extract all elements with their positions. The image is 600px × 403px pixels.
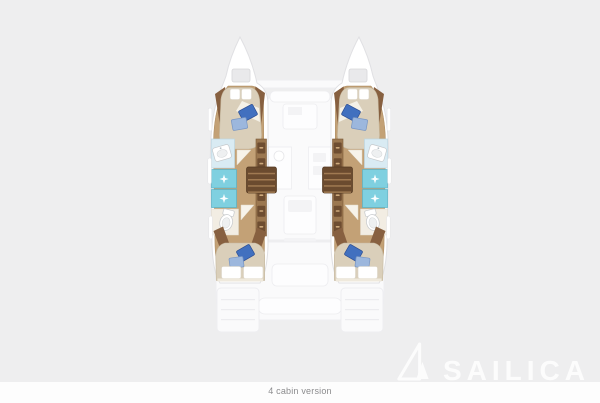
galley-sink-ghost	[274, 151, 284, 161]
saloon-table-item-ghost	[288, 107, 302, 115]
island-sink-ghost	[288, 200, 312, 212]
floorplan-canvas: SAILICA 4 cabin version	[0, 0, 600, 403]
stove-ghost	[313, 153, 326, 162]
transom-steps-ghost	[217, 288, 259, 332]
caption: 4 cabin version	[268, 387, 332, 396]
caption-bar: 4 cabin version	[0, 382, 600, 403]
transom-steps-ghost	[341, 288, 383, 332]
starboard-hull	[323, 37, 392, 283]
saloon-front-seat-ghost	[270, 91, 330, 102]
cockpit-bench-ghost	[258, 298, 342, 314]
port-hull	[208, 37, 277, 283]
sliding-door-ghost	[284, 238, 316, 242]
catamaran-floorplan	[0, 0, 600, 403]
cockpit-table-ghost	[272, 264, 328, 286]
